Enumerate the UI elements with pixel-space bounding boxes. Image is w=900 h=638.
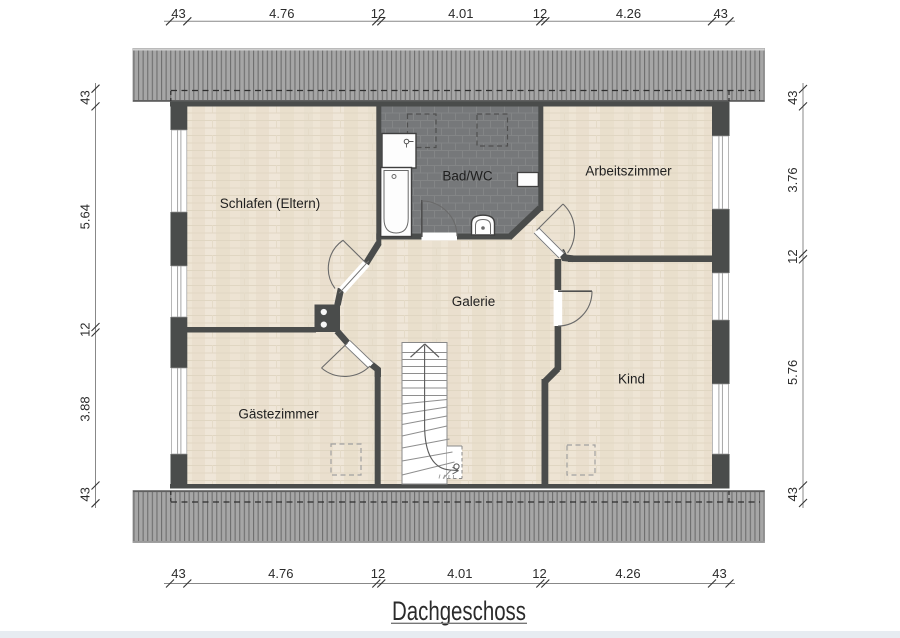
svg-text:43: 43 bbox=[78, 487, 93, 501]
svg-text:Galerie: Galerie bbox=[452, 294, 496, 309]
svg-text:3.76: 3.76 bbox=[785, 167, 800, 192]
svg-text:12: 12 bbox=[785, 249, 800, 263]
svg-text:43: 43 bbox=[78, 90, 93, 104]
svg-text:12: 12 bbox=[532, 566, 546, 581]
svg-text:12: 12 bbox=[78, 322, 93, 336]
svg-text:12: 12 bbox=[371, 6, 385, 21]
svg-text:43: 43 bbox=[785, 90, 800, 104]
svg-text:Bad/WC: Bad/WC bbox=[442, 169, 493, 184]
svg-text:5.76: 5.76 bbox=[785, 360, 800, 385]
svg-text:Arbeitszimmer: Arbeitszimmer bbox=[585, 164, 672, 179]
svg-text:4.76: 4.76 bbox=[268, 566, 293, 581]
svg-text:43: 43 bbox=[171, 566, 185, 581]
svg-text:Gästezimmer: Gästezimmer bbox=[238, 407, 319, 422]
svg-text:4.01: 4.01 bbox=[448, 6, 473, 21]
svg-text:4.26: 4.26 bbox=[615, 566, 640, 581]
svg-text:4.76: 4.76 bbox=[269, 6, 294, 21]
svg-text:43: 43 bbox=[712, 566, 726, 581]
svg-text:12: 12 bbox=[533, 6, 547, 21]
svg-text:Dachgeschoss: Dachgeschoss bbox=[392, 596, 526, 626]
svg-text:4.01: 4.01 bbox=[447, 566, 472, 581]
svg-text:Kind: Kind bbox=[618, 371, 645, 386]
svg-text:43: 43 bbox=[713, 6, 727, 21]
svg-text:43: 43 bbox=[171, 6, 185, 21]
svg-text:3.88: 3.88 bbox=[78, 396, 93, 421]
svg-text:4.26: 4.26 bbox=[616, 6, 641, 21]
svg-text:5.64: 5.64 bbox=[78, 204, 93, 229]
svg-text:12: 12 bbox=[371, 566, 385, 581]
svg-text:Schlafen (Eltern): Schlafen (Eltern) bbox=[220, 196, 321, 211]
svg-text:43: 43 bbox=[785, 487, 800, 501]
